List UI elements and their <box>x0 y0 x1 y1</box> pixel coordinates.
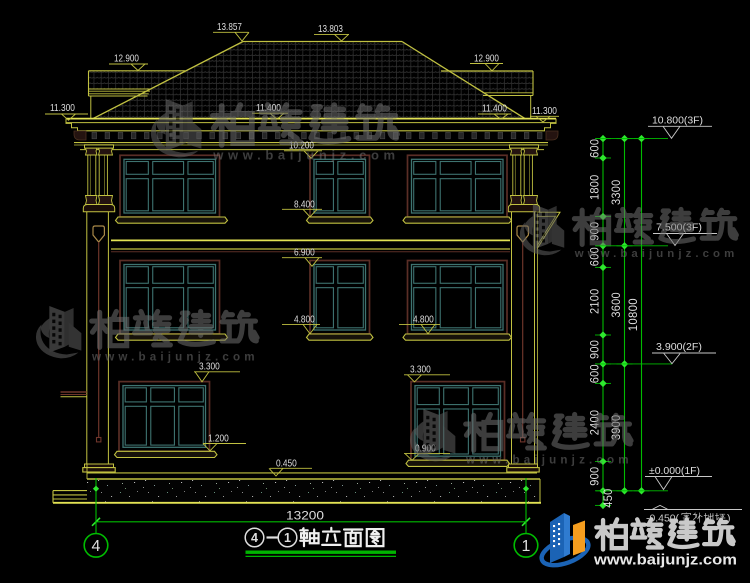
svg-text:12.900: 12.900 <box>114 54 139 65</box>
svg-text:10.800(3F): 10.800(3F) <box>652 115 703 127</box>
svg-text:3.300: 3.300 <box>410 364 431 375</box>
svg-text:8.400: 8.400 <box>294 199 315 210</box>
svg-text:4: 4 <box>92 538 101 555</box>
svg-text:3.900(2F): 3.900(2F) <box>656 341 702 353</box>
svg-text:11.300: 11.300 <box>532 106 557 117</box>
svg-text:600: 600 <box>590 364 602 383</box>
svg-text:13.803: 13.803 <box>318 24 343 35</box>
svg-text:13200: 13200 <box>286 509 324 523</box>
svg-text:4.800: 4.800 <box>294 314 315 325</box>
svg-text:www.baijunjz.com: www.baijunjz.com <box>91 350 259 363</box>
svg-text:10800: 10800 <box>628 298 640 331</box>
svg-text:4: 4 <box>251 531 258 545</box>
svg-text:11.400: 11.400 <box>482 104 507 115</box>
svg-text:6.900: 6.900 <box>294 248 315 259</box>
svg-text:www.baijunjz.com: www.baijunjz.com <box>574 248 739 260</box>
svg-text:13.857: 13.857 <box>217 22 242 33</box>
svg-text:3300: 3300 <box>611 179 623 205</box>
svg-text:1.200: 1.200 <box>208 433 229 444</box>
svg-text:1: 1 <box>284 531 291 545</box>
svg-text:900: 900 <box>590 340 602 359</box>
svg-text:3600: 3600 <box>611 292 623 318</box>
svg-text:900: 900 <box>590 467 602 486</box>
svg-text:www.baijunjz.com: www.baijunjz.com <box>593 553 737 569</box>
svg-text:±0.000(1F): ±0.000(1F) <box>649 465 700 477</box>
svg-text:450: 450 <box>603 488 615 507</box>
svg-text:4.800: 4.800 <box>413 314 434 325</box>
svg-text:www.baijunjz.com: www.baijunjz.com <box>465 453 633 466</box>
svg-text:12.900: 12.900 <box>474 54 499 65</box>
svg-text:2100: 2100 <box>590 288 602 314</box>
svg-text:600: 600 <box>590 139 602 158</box>
svg-text:1800: 1800 <box>590 174 602 200</box>
svg-text:11.300: 11.300 <box>50 103 75 114</box>
svg-text:0.450: 0.450 <box>276 458 297 469</box>
svg-text:1: 1 <box>522 538 531 555</box>
svg-text:www.baijunjz.com: www.baijunjz.com <box>212 148 399 163</box>
